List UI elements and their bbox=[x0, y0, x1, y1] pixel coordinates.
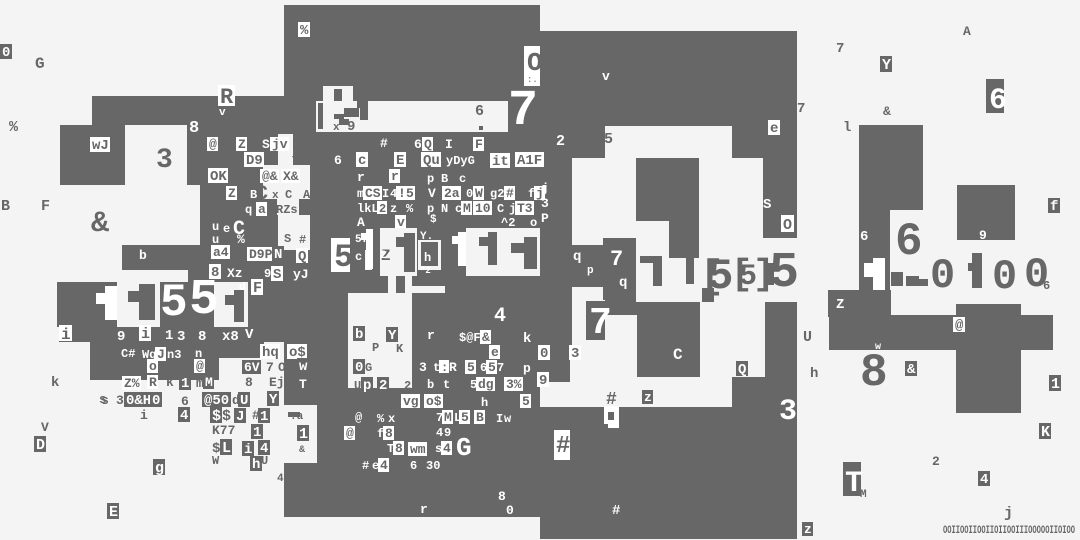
svg-text:5: 5 bbox=[189, 272, 219, 329]
svg-text:6: 6 bbox=[414, 137, 422, 152]
svg-text:@&: @& bbox=[262, 169, 278, 184]
svg-text:F: F bbox=[41, 198, 50, 215]
svg-text:4: 4 bbox=[494, 305, 506, 328]
svg-text:k: k bbox=[51, 375, 59, 391]
svg-text:k: k bbox=[523, 331, 531, 347]
svg-text:U: U bbox=[803, 329, 812, 346]
svg-text:T: T bbox=[299, 377, 307, 392]
svg-text:I: I bbox=[445, 137, 453, 152]
svg-text:5: 5 bbox=[406, 186, 414, 201]
svg-text:k: k bbox=[166, 375, 174, 390]
svg-text:M: M bbox=[860, 489, 867, 501]
svg-text:%: % bbox=[377, 412, 385, 426]
svg-text:r: r bbox=[420, 502, 428, 517]
svg-text:r: r bbox=[357, 170, 365, 185]
svg-text:6: 6 bbox=[1043, 279, 1050, 293]
svg-text:j: j bbox=[541, 181, 549, 196]
svg-text:RZs: RZs bbox=[276, 203, 298, 217]
svg-text:B: B bbox=[1, 198, 10, 215]
svg-text:Z%: Z% bbox=[124, 376, 140, 391]
svg-text:#: # bbox=[380, 136, 388, 151]
svg-text:7: 7 bbox=[797, 101, 805, 117]
svg-text:Y: Y bbox=[292, 154, 300, 168]
svg-text:U: U bbox=[240, 393, 248, 409]
svg-text:M: M bbox=[463, 201, 471, 216]
svg-text:P: P bbox=[541, 211, 549, 226]
svg-text:Ej: Ej bbox=[269, 375, 285, 390]
svg-text:2: 2 bbox=[932, 454, 940, 469]
svg-text:D9: D9 bbox=[246, 153, 263, 169]
svg-text:wJ: wJ bbox=[92, 138, 109, 154]
svg-text:6: 6 bbox=[475, 103, 484, 120]
svg-text:Q: Q bbox=[298, 249, 306, 265]
svg-text:0: 0 bbox=[152, 393, 160, 409]
svg-text:8: 8 bbox=[498, 489, 506, 504]
svg-text:Y: Y bbox=[882, 57, 891, 74]
svg-text:0: 0 bbox=[930, 252, 955, 300]
svg-text:^2: ^2 bbox=[501, 216, 515, 230]
svg-text:K77: K77 bbox=[212, 423, 235, 438]
svg-text:6: 6 bbox=[989, 84, 1007, 118]
svg-text:3: 3 bbox=[156, 145, 173, 176]
svg-text:lkL: lkL bbox=[357, 202, 379, 216]
svg-text:9: 9 bbox=[444, 426, 451, 440]
svg-text:1: 1 bbox=[299, 426, 308, 443]
svg-text:#: # bbox=[506, 186, 514, 201]
svg-text:7: 7 bbox=[836, 41, 844, 57]
svg-text:$@F: $@F bbox=[459, 331, 481, 345]
svg-text:&: & bbox=[883, 104, 891, 119]
svg-text:U: U bbox=[354, 379, 361, 393]
svg-text:@: @ bbox=[955, 318, 964, 334]
svg-text:&: & bbox=[91, 207, 109, 241]
svg-text:$: $ bbox=[430, 214, 437, 226]
svg-text:A1F: A1F bbox=[517, 153, 542, 169]
svg-text:x: x bbox=[333, 122, 340, 134]
svg-text:jv: jv bbox=[272, 137, 288, 152]
svg-text:p: p bbox=[587, 265, 594, 277]
svg-text:8: 8 bbox=[245, 375, 253, 390]
svg-text:CS: CS bbox=[365, 186, 381, 201]
svg-text:p: p bbox=[363, 378, 371, 394]
svg-text:4: 4 bbox=[277, 473, 284, 485]
svg-text:9: 9 bbox=[347, 119, 355, 135]
svg-text:#: # bbox=[299, 233, 306, 247]
svg-text:o: o bbox=[530, 216, 537, 230]
svg-text:h: h bbox=[481, 396, 488, 410]
svg-text:j: j bbox=[1004, 505, 1013, 522]
svg-text:X&: X& bbox=[283, 169, 299, 184]
svg-text:3: 3 bbox=[116, 393, 124, 408]
svg-text:S: S bbox=[273, 267, 281, 283]
svg-text:e: e bbox=[491, 345, 499, 360]
svg-text:x: x bbox=[388, 412, 395, 426]
svg-text:r: r bbox=[427, 328, 435, 343]
svg-text:2: 2 bbox=[556, 133, 565, 150]
svg-text:C: C bbox=[673, 346, 683, 364]
svg-text:0&H: 0&H bbox=[126, 393, 151, 409]
svg-text:A: A bbox=[357, 215, 365, 230]
svg-text:S: S bbox=[284, 232, 291, 246]
svg-text:5: 5 bbox=[604, 131, 613, 148]
svg-text:#: # bbox=[556, 433, 570, 460]
svg-text:0: 0 bbox=[2, 45, 10, 61]
svg-text:@: @ bbox=[209, 137, 217, 152]
svg-text:M: M bbox=[444, 410, 452, 425]
svg-text:e: e bbox=[770, 121, 778, 137]
svg-text:c: c bbox=[355, 250, 362, 264]
svg-text:7: 7 bbox=[610, 247, 623, 272]
svg-text:w: w bbox=[504, 412, 512, 426]
svg-text:3: 3 bbox=[571, 346, 579, 362]
svg-text:3%: 3% bbox=[506, 377, 522, 392]
svg-text:a: a bbox=[258, 202, 266, 217]
svg-text:S: S bbox=[262, 137, 270, 152]
svg-text:Y.: Y. bbox=[420, 231, 433, 243]
svg-text:D: D bbox=[36, 437, 45, 454]
svg-text:G: G bbox=[365, 361, 372, 375]
svg-text:it: it bbox=[492, 154, 509, 170]
svg-text:G: G bbox=[456, 433, 472, 463]
svg-text:J: J bbox=[157, 347, 165, 362]
svg-text:g: g bbox=[155, 460, 164, 477]
svg-text:dg: dg bbox=[478, 377, 494, 392]
svg-text:N: N bbox=[441, 202, 448, 216]
svg-text:5: 5 bbox=[461, 410, 469, 425]
svg-text:A: A bbox=[303, 188, 311, 202]
svg-text:W: W bbox=[212, 454, 220, 468]
svg-text:6: 6 bbox=[181, 394, 189, 409]
svg-text:q: q bbox=[245, 203, 252, 217]
svg-text:6: 6 bbox=[895, 216, 923, 268]
svg-text:F: F bbox=[475, 137, 483, 152]
svg-text:i: i bbox=[141, 326, 150, 343]
svg-text:x: x bbox=[272, 190, 279, 202]
svg-text:v: v bbox=[602, 69, 610, 84]
svg-text:0: 0 bbox=[466, 187, 473, 201]
svg-text:c: c bbox=[459, 172, 466, 186]
svg-text:yJ: yJ bbox=[293, 267, 309, 282]
svg-text:8: 8 bbox=[198, 329, 206, 345]
svg-text:b: b bbox=[355, 327, 363, 343]
svg-text:O: O bbox=[527, 48, 543, 78]
svg-text:v: v bbox=[219, 107, 226, 119]
svg-text:o: o bbox=[149, 359, 157, 374]
svg-text:1: 1 bbox=[181, 376, 189, 392]
svg-text:a4: a4 bbox=[213, 245, 229, 260]
svg-text:i: i bbox=[61, 326, 71, 344]
svg-text:wm: wm bbox=[410, 442, 426, 457]
svg-text:W: W bbox=[475, 186, 483, 201]
svg-text:@: @ bbox=[355, 411, 362, 425]
svg-text:@: @ bbox=[196, 359, 204, 374]
svg-text:R: R bbox=[149, 375, 157, 390]
svg-text:10: 10 bbox=[475, 201, 491, 216]
svg-text:D9P: D9P bbox=[249, 247, 273, 262]
svg-text:8: 8 bbox=[189, 119, 199, 138]
svg-text:A: A bbox=[963, 24, 971, 39]
svg-text:&: & bbox=[907, 362, 916, 378]
svg-text:x8: x8 bbox=[222, 329, 239, 345]
svg-text:q: q bbox=[573, 249, 581, 265]
svg-text:T3: T3 bbox=[517, 201, 533, 216]
svg-text:3: 3 bbox=[779, 395, 797, 429]
svg-text:z: z bbox=[804, 522, 812, 537]
svg-text:V: V bbox=[428, 186, 436, 201]
svg-text:3: 3 bbox=[541, 196, 549, 211]
svg-text:0: 0 bbox=[355, 360, 363, 376]
svg-text:N: N bbox=[274, 247, 282, 263]
svg-text:L: L bbox=[222, 440, 231, 457]
svg-text:9: 9 bbox=[539, 373, 547, 389]
svg-text:4: 4 bbox=[436, 426, 443, 440]
svg-text:vg: vg bbox=[403, 394, 419, 409]
svg-text:R: R bbox=[449, 360, 457, 375]
svg-text:I: I bbox=[496, 412, 503, 426]
svg-text:2: 2 bbox=[404, 379, 411, 393]
svg-text:5: 5 bbox=[160, 277, 188, 329]
svg-text:n3: n3 bbox=[167, 348, 181, 362]
svg-text:B: B bbox=[441, 172, 448, 186]
svg-text:7: 7 bbox=[266, 360, 274, 375]
svg-text:p: p bbox=[427, 172, 434, 186]
svg-text:q: q bbox=[619, 275, 627, 291]
svg-text:1: 1 bbox=[1051, 376, 1060, 393]
svg-text:9: 9 bbox=[264, 267, 271, 281]
svg-text:z: z bbox=[390, 202, 397, 216]
svg-text:E: E bbox=[109, 504, 118, 521]
svg-text:t: t bbox=[443, 378, 450, 392]
svg-text:5: 5 bbox=[522, 394, 530, 409]
svg-text:C: C bbox=[497, 202, 504, 216]
svg-text:#: # bbox=[612, 503, 620, 519]
svg-text:8: 8 bbox=[860, 347, 888, 399]
svg-text:5: 5 bbox=[769, 245, 799, 302]
svg-text:1: 1 bbox=[165, 328, 173, 344]
svg-text:Z: Z bbox=[836, 297, 844, 313]
svg-text:i: i bbox=[140, 408, 148, 423]
svg-text:%: % bbox=[9, 119, 19, 136]
svg-text:h: h bbox=[252, 457, 260, 473]
svg-text:P: P bbox=[372, 341, 379, 355]
svg-text:%: % bbox=[406, 202, 414, 216]
svg-text:m: m bbox=[196, 376, 204, 391]
svg-text:V: V bbox=[245, 327, 254, 343]
svg-text:K: K bbox=[396, 342, 404, 356]
svg-text:8: 8 bbox=[395, 441, 403, 456]
svg-text:#: # bbox=[362, 459, 369, 473]
svg-text:h: h bbox=[424, 251, 431, 265]
svg-text:s: s bbox=[99, 392, 107, 407]
svg-text:l: l bbox=[843, 120, 851, 136]
svg-text:v: v bbox=[397, 215, 405, 230]
svg-text:1: 1 bbox=[253, 425, 261, 441]
svg-text:V: V bbox=[41, 420, 49, 435]
svg-text:G: G bbox=[35, 55, 45, 73]
svg-text:Y: Y bbox=[269, 392, 278, 408]
svg-text:OOIIOOIIOOIIOIIOOIIIOOOOOIIOIO: OOIIOOIIOOIIOIIOOIIIOOOOOIIOIOO bbox=[943, 525, 1075, 537]
svg-text:e: e bbox=[223, 222, 230, 236]
svg-text:C: C bbox=[285, 188, 292, 202]
svg-text:3: 3 bbox=[419, 360, 427, 375]
svg-text:O: O bbox=[783, 217, 792, 234]
svg-text:&: & bbox=[299, 445, 305, 456]
svg-text:2: 2 bbox=[379, 202, 386, 216]
svg-text:&: & bbox=[482, 330, 490, 345]
svg-text:4: 4 bbox=[180, 408, 188, 424]
svg-text:2: 2 bbox=[379, 378, 387, 394]
svg-text:30: 30 bbox=[426, 459, 440, 473]
svg-text:OK: OK bbox=[210, 169, 227, 185]
svg-text:S: S bbox=[763, 197, 771, 213]
svg-text:U: U bbox=[261, 454, 268, 468]
svg-text:O8: O8 bbox=[278, 360, 294, 375]
svg-text:7: 7 bbox=[589, 302, 612, 345]
svg-text:5: 5 bbox=[334, 239, 353, 276]
svg-text:M: M bbox=[205, 375, 213, 390]
svg-text:8: 8 bbox=[385, 426, 393, 441]
svg-text:o$: o$ bbox=[426, 394, 442, 409]
svg-text:yDyG: yDyG bbox=[446, 154, 475, 168]
svg-text:b: b bbox=[427, 378, 434, 392]
svg-text:2: 2 bbox=[380, 250, 387, 262]
svg-text:Qu: Qu bbox=[423, 153, 440, 169]
svg-text:4: 4 bbox=[380, 458, 388, 473]
svg-text:1: 1 bbox=[260, 409, 268, 425]
svg-text:K: K bbox=[1041, 424, 1050, 441]
svg-text:Z: Z bbox=[228, 186, 236, 201]
svg-text:4: 4 bbox=[443, 441, 451, 456]
svg-text:3: 3 bbox=[177, 329, 185, 345]
svg-text:0: 0 bbox=[540, 346, 548, 362]
svg-text:p: p bbox=[523, 361, 531, 376]
svg-text:u: u bbox=[212, 220, 219, 234]
svg-text:Q: Q bbox=[424, 137, 432, 152]
svg-text:5: 5 bbox=[488, 360, 496, 375]
svg-text:@: @ bbox=[346, 426, 354, 441]
svg-text:%: % bbox=[300, 23, 309, 39]
svg-text:J: J bbox=[236, 409, 244, 425]
svg-text:6: 6 bbox=[860, 229, 868, 245]
svg-text:w: w bbox=[299, 359, 308, 375]
svg-text::: : bbox=[441, 361, 448, 375]
svg-text:0: 0 bbox=[992, 253, 1017, 301]
svg-text:F: F bbox=[253, 280, 262, 297]
svg-text:5: 5 bbox=[467, 360, 475, 375]
svg-text:r: r bbox=[391, 169, 399, 184]
svg-text:6: 6 bbox=[334, 153, 342, 168]
svg-text:f: f bbox=[1050, 199, 1058, 215]
svg-text:i: i bbox=[244, 442, 252, 458]
svg-text:6V: 6V bbox=[244, 360, 260, 375]
svg-text:7: 7 bbox=[497, 361, 504, 375]
svg-text:9: 9 bbox=[979, 228, 987, 243]
svg-text:7: 7 bbox=[508, 83, 538, 140]
svg-text:4: 4 bbox=[980, 472, 988, 488]
svg-text:B: B bbox=[476, 410, 484, 425]
svg-text:hq: hq bbox=[262, 345, 279, 361]
svg-text:"2: "2 bbox=[420, 266, 431, 276]
svg-text:9: 9 bbox=[117, 329, 125, 345]
svg-text:Z: Z bbox=[238, 137, 246, 152]
svg-text:@50: @50 bbox=[204, 393, 229, 409]
svg-text:6: 6 bbox=[410, 459, 417, 473]
svg-text:2a: 2a bbox=[444, 186, 460, 201]
svg-text:0: 0 bbox=[506, 503, 514, 518]
svg-text:z: z bbox=[644, 390, 652, 405]
svg-text:Xz: Xz bbox=[227, 266, 243, 281]
svg-text:Q: Q bbox=[738, 362, 746, 378]
svg-text:g2: g2 bbox=[490, 187, 504, 201]
svg-text:%: % bbox=[237, 232, 245, 247]
svg-text:b: b bbox=[139, 248, 147, 263]
svg-text:h: h bbox=[810, 366, 818, 382]
svg-text:c: c bbox=[358, 153, 366, 169]
svg-text:C#: C# bbox=[121, 347, 135, 361]
svg-text:I: I bbox=[382, 187, 389, 201]
svg-text:E: E bbox=[396, 153, 404, 169]
